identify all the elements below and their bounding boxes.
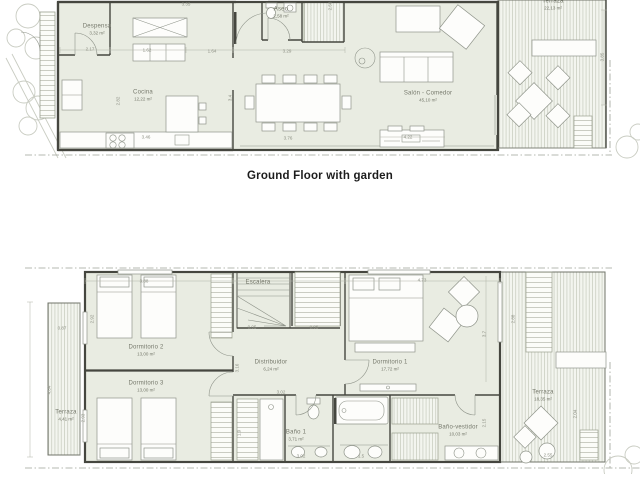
- sink-icon: [368, 446, 382, 458]
- sink-icon: [284, 3, 296, 12]
- bathtub-icon: [335, 397, 388, 424]
- terrace-table: [539, 443, 555, 459]
- terrace-planter: [532, 40, 596, 56]
- wardrobe: [295, 272, 340, 326]
- kitchen-tall-units: [133, 44, 185, 61]
- toilet-icon: [307, 398, 320, 419]
- side-table: [456, 305, 478, 327]
- closet: [392, 433, 438, 460]
- kitchen-counter: [60, 132, 232, 148]
- terrace-slider: [498, 282, 502, 342]
- bath-door-leaf: [334, 398, 337, 424]
- terrace-deck-left: [48, 303, 80, 455]
- first-floor-drawing: [0, 262, 640, 474]
- closet: [392, 398, 438, 424]
- bed-single: [141, 398, 176, 460]
- garden-steps-icon: [580, 430, 598, 460]
- double-vanity: [445, 446, 498, 460]
- bed-double: [349, 275, 423, 341]
- entry-porch-deck: [304, 2, 344, 42]
- sheet-title: Ground Floor with garden: [0, 170, 640, 182]
- window: [83, 312, 87, 344]
- shower: [260, 399, 283, 460]
- sofa: [380, 52, 453, 82]
- bed-single: [97, 398, 132, 460]
- desk: [360, 384, 416, 391]
- sink-icon: [344, 446, 360, 459]
- terrace-chair: [520, 451, 532, 463]
- hob-icon: [106, 133, 134, 148]
- entry-door-leaf: [234, 12, 237, 44]
- stool: [199, 117, 206, 124]
- floorplan-sheet: Ground Floor with garden: [0, 0, 640, 480]
- wardrobe: [211, 402, 232, 460]
- sink-icon: [292, 447, 305, 458]
- window: [368, 270, 430, 274]
- console-table: [396, 6, 440, 32]
- garden-trees: [604, 446, 640, 474]
- sink-icon: [315, 447, 327, 457]
- pergola-louvers: [526, 272, 552, 352]
- bed-single: [97, 275, 132, 338]
- linen-closet: [237, 399, 258, 460]
- stool: [199, 103, 206, 110]
- bed-single: [141, 275, 176, 338]
- terrace-planter: [556, 352, 606, 368]
- kitchen-island: [166, 96, 198, 132]
- window: [118, 270, 172, 274]
- ground-floor-drawing: [0, 0, 640, 162]
- wardrobe: [211, 274, 232, 338]
- window: [83, 410, 87, 442]
- garden-steps-icon: [574, 116, 592, 148]
- bed-bench: [355, 343, 415, 352]
